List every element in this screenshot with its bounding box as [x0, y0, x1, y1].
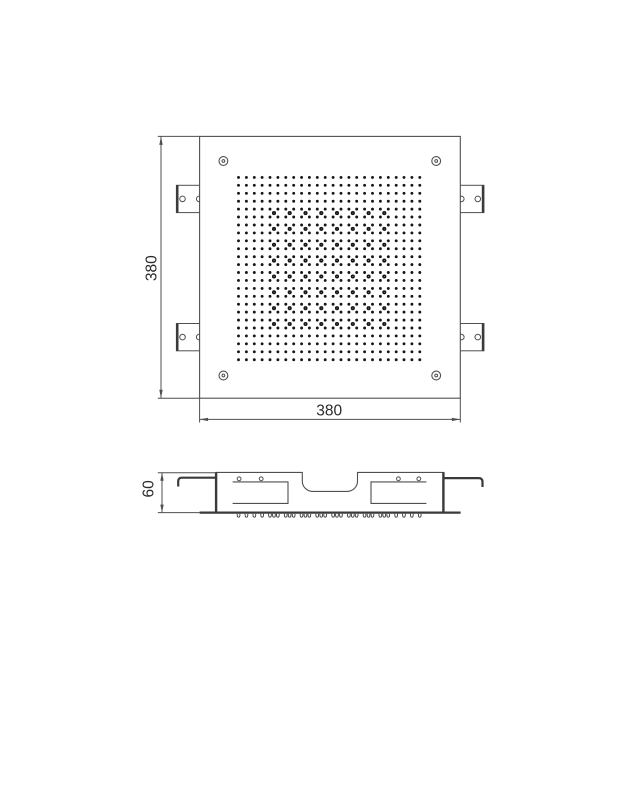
svg-text:380: 380 — [316, 402, 342, 419]
svg-text:60: 60 — [140, 480, 157, 498]
svg-text:380: 380 — [143, 255, 160, 281]
